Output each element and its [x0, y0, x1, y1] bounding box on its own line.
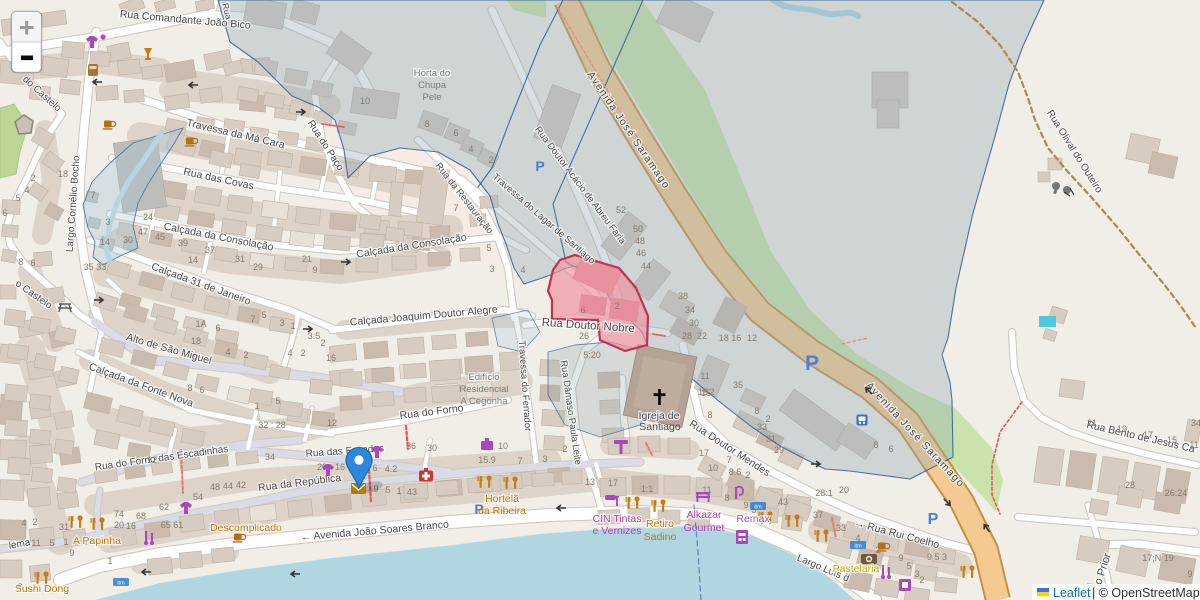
svg-text:6: 6 [199, 385, 204, 395]
svg-text:8: 8 [424, 119, 429, 129]
svg-text:5: 5 [261, 310, 266, 320]
svg-text:54: 54 [193, 492, 203, 502]
svg-text:6: 6 [2, 208, 7, 218]
svg-text:Remax: Remax [736, 513, 770, 525]
svg-text:44: 44 [641, 261, 651, 271]
svg-text:Sushi Dong: Sushi Dong [15, 583, 69, 595]
svg-text:7: 7 [726, 455, 731, 465]
svg-text:3: 3 [279, 318, 284, 328]
svg-text:Edifício: Edifício [468, 372, 499, 383]
svg-text:1A: 1A [195, 319, 206, 329]
svg-text:18 16: 18 16 [719, 333, 742, 343]
svg-text:10: 10 [708, 463, 718, 473]
svg-text:Sadino: Sadino [644, 531, 677, 543]
svg-text:11: 11 [31, 538, 40, 548]
svg-text:7: 7 [250, 314, 255, 324]
svg-text:4: 4 [21, 518, 26, 528]
svg-text:20: 20 [839, 485, 849, 495]
svg-text:32 : 28: 32 : 28 [258, 420, 286, 430]
svg-text:Pele: Pele [422, 92, 441, 103]
svg-text:1: 1 [290, 321, 295, 331]
svg-text:Retiro: Retiro [646, 518, 674, 530]
svg-text:1: 1 [107, 556, 112, 566]
svg-text:3: 3 [489, 264, 494, 274]
svg-text:12: 12 [147, 455, 157, 465]
svg-text:10: 10 [498, 441, 508, 451]
svg-text:30: 30 [689, 318, 699, 328]
svg-text:8: 8 [707, 410, 712, 420]
svg-text:18: 18 [58, 169, 68, 179]
svg-text:2: 2 [243, 350, 248, 360]
svg-text:4: 4 [225, 347, 230, 357]
svg-text:26: 26 [579, 331, 589, 341]
svg-text:15.9: 15.9 [478, 455, 496, 465]
svg-text:2: 2 [320, 338, 325, 348]
svg-text:16: 16 [126, 521, 136, 531]
svg-text:4: 4 [468, 144, 473, 154]
svg-text:9: 9 [1187, 569, 1192, 579]
svg-text:35 33: 35 33 [84, 262, 107, 272]
svg-text:24: 24 [143, 212, 153, 222]
svg-text:9: 9 [312, 265, 317, 275]
svg-text:30: 30 [427, 443, 437, 453]
svg-text:4: 4 [287, 348, 292, 358]
svg-text:31: 31 [766, 434, 776, 444]
svg-text:74: 74 [114, 509, 124, 519]
svg-text:6: 6 [888, 444, 893, 454]
svg-text:3: 3 [542, 454, 547, 464]
svg-text:1: 1 [254, 401, 259, 411]
svg-text:Horta do: Horta do [414, 68, 450, 79]
svg-text:13: 13 [585, 477, 595, 487]
svg-text:28: 28 [1125, 480, 1135, 490]
svg-text:15: 15 [698, 387, 708, 397]
svg-text:2: 2 [562, 444, 567, 454]
svg-text:34: 34 [685, 305, 695, 315]
svg-text:5: 5 [15, 193, 20, 203]
svg-text:9: 9 [69, 548, 74, 558]
svg-text:7: 7 [517, 456, 522, 466]
svg-text:e Vernizes: e Vernizes [592, 525, 641, 537]
svg-text:8: 8 [187, 383, 192, 393]
svg-text:14: 14 [100, 237, 110, 247]
svg-text:17: 17 [1143, 430, 1153, 440]
svg-text:da Ribeira: da Ribeira [478, 505, 526, 517]
svg-text:itm: itm [854, 544, 862, 550]
svg-text:P: P [928, 511, 939, 528]
svg-text:36: 36 [406, 441, 416, 451]
svg-text:itm: itm [117, 581, 125, 587]
svg-text:Hortelã: Hortelã [485, 493, 519, 505]
svg-text:37: 37 [205, 245, 215, 255]
svg-text:6: 6 [372, 463, 377, 473]
svg-text:33: 33 [836, 523, 846, 533]
svg-text:6: 6 [453, 128, 458, 138]
svg-text:8: 8 [724, 493, 729, 503]
svg-text:17;N 19: 17;N 19 [1142, 553, 1174, 563]
svg-text:21: 21 [1087, 418, 1097, 428]
svg-text:1: 1 [63, 537, 68, 547]
svg-text:14: 14 [188, 255, 198, 265]
svg-text:4.2: 4.2 [385, 464, 398, 474]
svg-text:5: 5 [49, 538, 54, 548]
svg-text:Pastelaria: Pastelaria [833, 563, 880, 575]
svg-text:39: 39 [178, 238, 188, 248]
svg-text:16: 16 [326, 353, 336, 363]
svg-text:47: 47 [138, 227, 148, 237]
svg-text:Alkazar: Alkazar [686, 509, 722, 521]
svg-text:48: 48 [210, 482, 220, 492]
svg-text:43: 43 [778, 497, 788, 507]
svg-text:29: 29 [774, 445, 784, 455]
svg-text:2: 2 [614, 301, 619, 311]
svg-text:Leaflet: Leaflet [1053, 586, 1091, 600]
svg-text:9: 9 [743, 500, 748, 510]
svg-text:44: 44 [223, 481, 233, 491]
svg-text:5: 5 [486, 243, 491, 253]
svg-text:7: 7 [90, 190, 95, 200]
svg-text:34: 34 [265, 452, 275, 462]
svg-text:3: 3 [105, 217, 110, 227]
svg-text:43: 43 [407, 487, 417, 497]
svg-text:5: 5 [385, 485, 390, 495]
svg-text:35: 35 [733, 380, 743, 390]
svg-text:18: 18 [191, 336, 201, 346]
svg-text:P: P [535, 158, 544, 174]
svg-text:2: 2 [30, 173, 35, 183]
svg-text:1:1: 1:1 [641, 484, 654, 494]
svg-text:42: 42 [236, 480, 246, 490]
svg-text:8: 8 [754, 406, 759, 416]
svg-text:6: 6 [30, 258, 35, 268]
svg-text:8: 8 [873, 440, 878, 450]
svg-text:9 5 3: 9 5 3 [927, 552, 947, 562]
svg-text:Residencial: Residencial [459, 384, 508, 395]
svg-text:8.6: 8.6 [729, 467, 742, 477]
svg-text:4: 4 [520, 265, 525, 275]
svg-text:8: 8 [18, 257, 23, 267]
svg-text:3:5: 3:5 [308, 331, 321, 341]
svg-text:Descomplicado: Descomplicado [210, 522, 282, 534]
svg-text:5:20: 5:20 [583, 350, 601, 360]
svg-text:22: 22 [697, 331, 707, 341]
svg-text:19: 19 [1117, 424, 1127, 434]
svg-text:P: P [805, 352, 819, 375]
svg-text:28: 28 [682, 331, 692, 341]
svg-text:48: 48 [635, 236, 645, 246]
svg-text:46: 46 [636, 248, 646, 258]
svg-text:65 61: 65 61 [161, 520, 184, 530]
svg-text:16: 16 [335, 462, 345, 472]
svg-text:Gourmet: Gourmet [684, 522, 725, 534]
svg-text:26:24: 26:24 [1165, 488, 1188, 498]
svg-text:21: 21 [302, 254, 312, 264]
svg-text:11: 11 [1189, 440, 1198, 450]
svg-text:62: 62 [159, 502, 169, 512]
svg-text:37: 37 [813, 510, 823, 520]
svg-text:10: 10 [360, 96, 370, 106]
svg-text:itm: itm [754, 505, 762, 511]
svg-text:2: 2 [300, 348, 305, 358]
svg-text:| © OpenStreetMap: | © OpenStreetMap [1092, 586, 1200, 600]
svg-text:33: 33 [757, 422, 767, 432]
svg-text:6: 6 [580, 305, 585, 315]
svg-text:31: 31 [235, 254, 245, 264]
svg-text:4: 4 [24, 185, 29, 195]
svg-text:2: 2 [488, 155, 493, 165]
svg-text:7: 7 [453, 203, 458, 213]
svg-text:Chupa: Chupa [418, 80, 447, 91]
svg-text:52: 52 [616, 205, 626, 215]
svg-text:2: 2 [32, 517, 37, 527]
svg-text:2: 2 [745, 470, 750, 480]
svg-text:5: 5 [275, 396, 280, 406]
svg-text:17: 17 [699, 448, 709, 458]
svg-text:50: 50 [633, 224, 643, 234]
svg-text:12: 12 [747, 333, 757, 343]
svg-text:20: 20 [114, 520, 124, 530]
svg-text:68: 68 [136, 511, 146, 521]
svg-text:31: 31 [59, 522, 69, 532]
svg-text:45: 45 [155, 232, 165, 242]
svg-text:29: 29 [253, 262, 263, 272]
svg-text:38: 38 [678, 291, 688, 301]
svg-text:2: 2 [919, 575, 924, 585]
svg-text:30: 30 [123, 235, 133, 245]
svg-text:CIN Tintas: CIN Tintas [592, 513, 641, 525]
svg-text:A Cegonha: A Cegonha [460, 396, 508, 407]
svg-text:17: 17 [608, 478, 618, 488]
svg-text:28:1: 28:1 [815, 488, 833, 498]
svg-text:A Papinha: A Papinha [73, 535, 121, 547]
svg-text:9: 9 [898, 553, 903, 563]
svg-text:6: 6 [215, 323, 220, 333]
svg-text:Santiago: Santiago [639, 421, 681, 433]
svg-text:15: 15 [1167, 435, 1177, 445]
svg-text:12: 12 [327, 418, 337, 428]
svg-text:11: 11 [700, 371, 709, 381]
svg-text:5: 5 [906, 561, 911, 571]
svg-text:34: 34 [1191, 418, 1200, 428]
svg-text:1: 1 [396, 486, 401, 496]
